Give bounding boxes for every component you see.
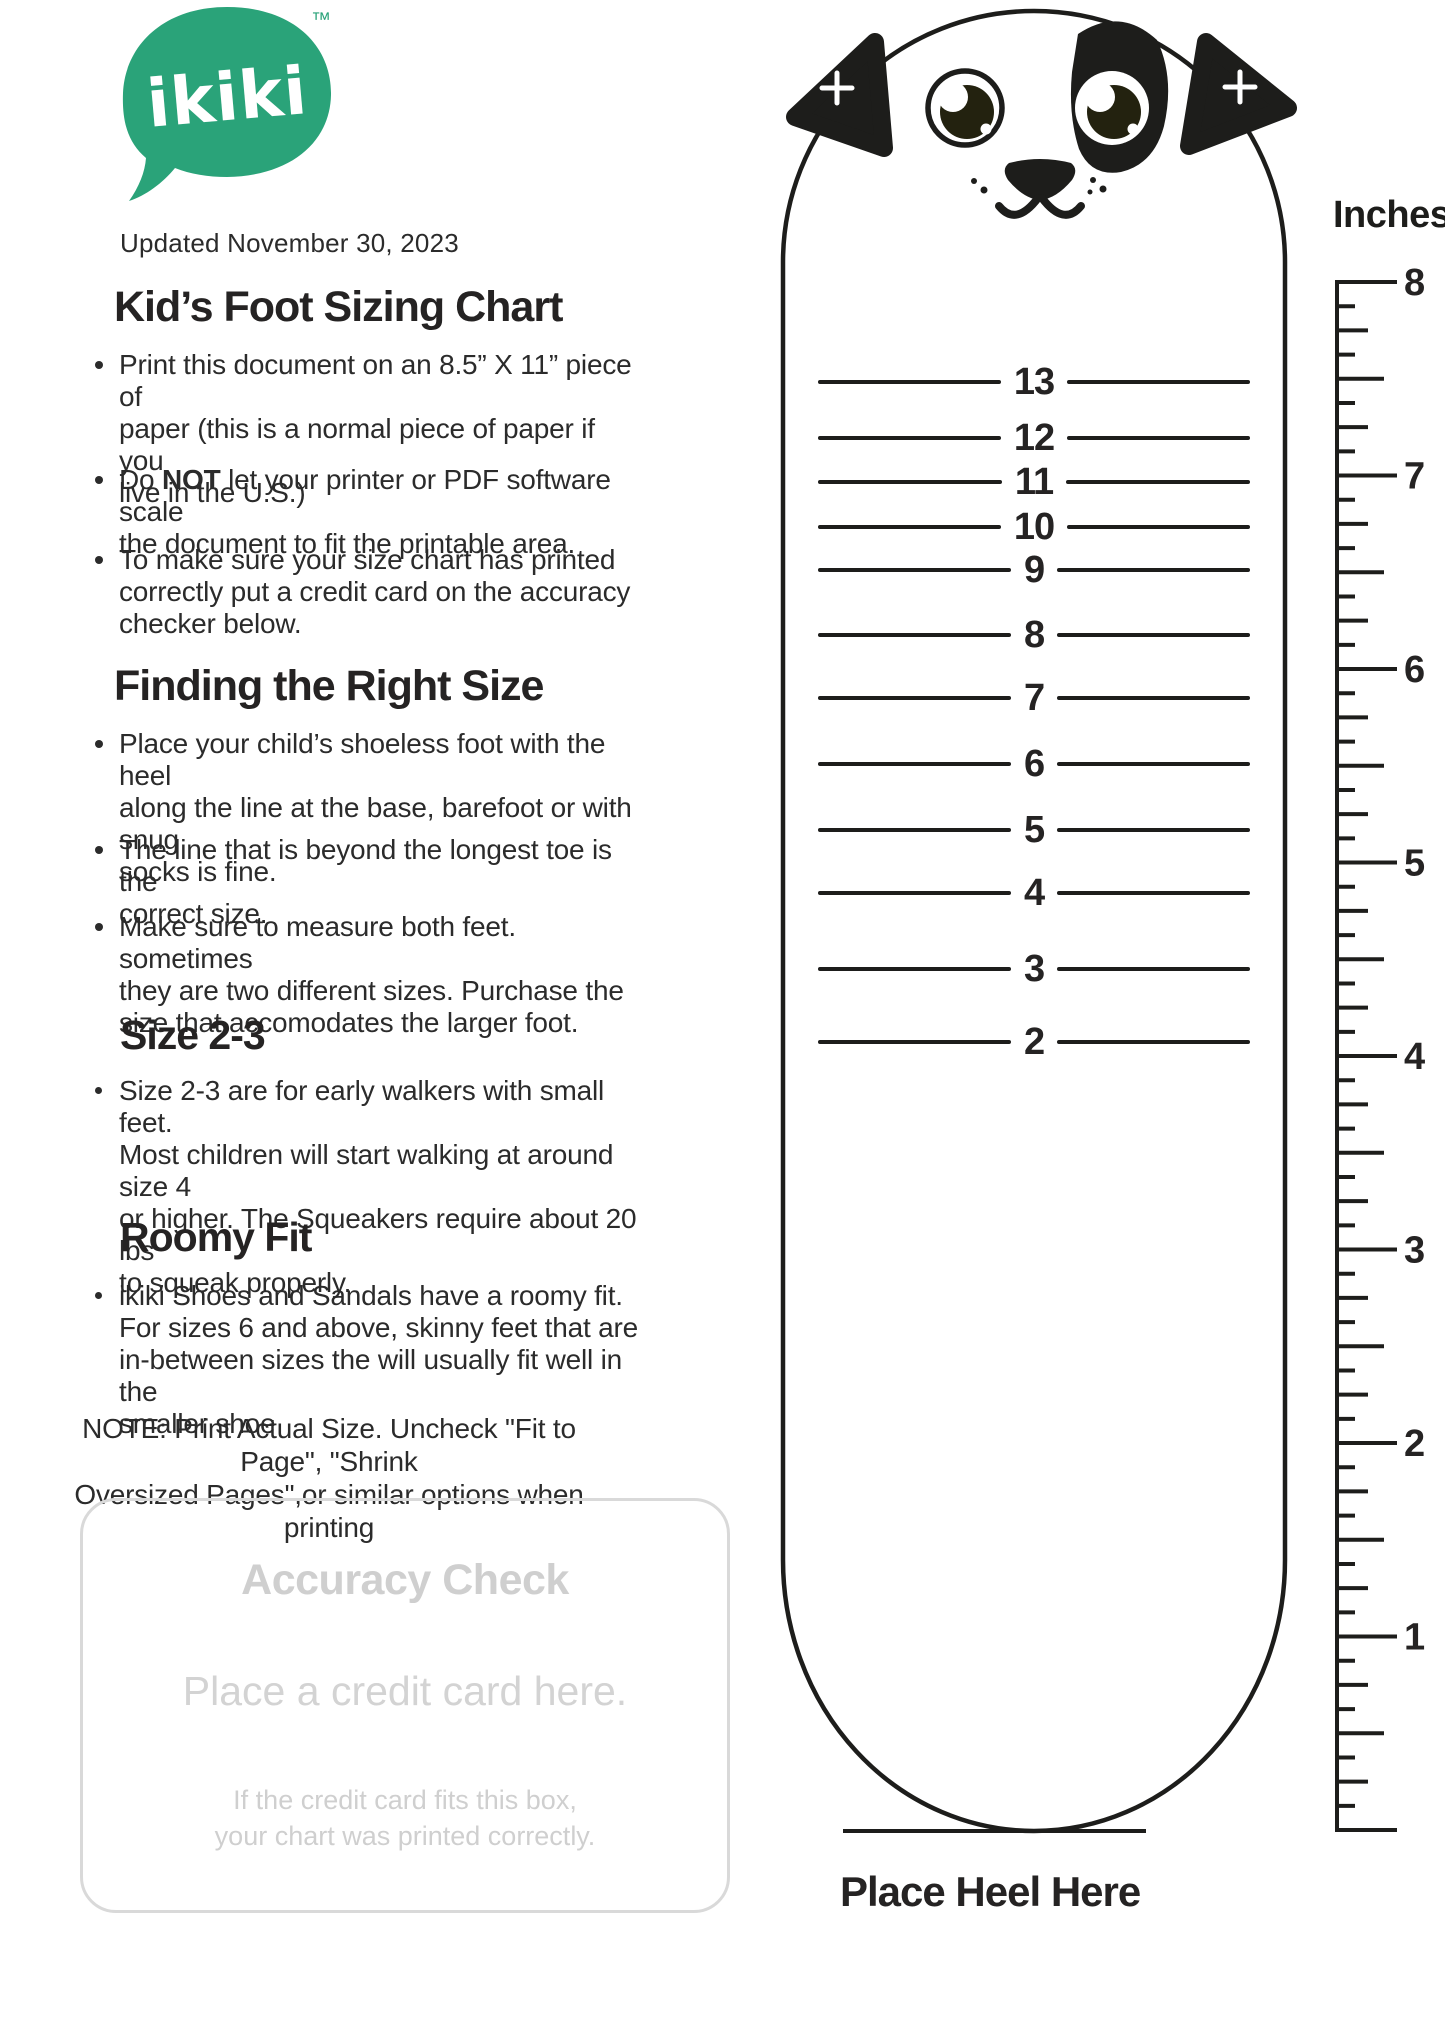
updated-date: Updated November 30, 2023 — [120, 228, 459, 259]
foot-sizing-chart-page: 87654321 ikiki ™ Updated November 30, 20… — [0, 0, 1445, 2043]
inches-ruler: 87654321 — [1337, 262, 1425, 1832]
logo-trademark: ™ — [311, 9, 331, 31]
size-line-left — [818, 633, 1011, 637]
bullet-accuracy-checker: To make sure your size chart has printed… — [119, 544, 639, 640]
size-number: 5 — [1024, 809, 1044, 851]
size-line-left — [818, 525, 1001, 529]
size-line-left — [818, 967, 1011, 971]
size-line-left — [818, 696, 1011, 700]
size-line-right — [1057, 633, 1250, 637]
section-title-roomy-fit: Roomy Fit — [120, 1214, 311, 1261]
size-line-right — [1057, 828, 1250, 832]
bullet-dot — [95, 361, 103, 369]
size-number: 4 — [1024, 872, 1044, 914]
size-line-left — [818, 762, 1011, 766]
size-number: 6 — [1024, 743, 1044, 785]
size-line-left — [818, 380, 1001, 384]
accuracy-check-caption: If the credit card fits this box, your c… — [80, 1782, 730, 1854]
ruler-labels: 87654321 — [1404, 262, 1425, 1659]
ruler-inch-number: 1 — [1404, 1617, 1425, 1659]
size-line-row: 9 — [818, 549, 1250, 591]
page-title: Kid’s Foot Sizing Chart — [114, 283, 562, 332]
section-title-finding-size: Finding the Right Size — [114, 662, 543, 711]
size-line-right — [1057, 891, 1250, 895]
size-number: 13 — [1014, 361, 1054, 403]
size-line-left — [818, 891, 1011, 895]
size-line-right — [1057, 696, 1250, 700]
size-line-right — [1067, 525, 1250, 529]
size-line-left — [818, 828, 1011, 832]
size-line-left — [818, 480, 1002, 484]
ruler-title: Inches — [1333, 194, 1445, 237]
size-line-right — [1066, 480, 1250, 484]
size-line-row: 7 — [818, 677, 1250, 719]
dog-right-eye-icon — [1075, 71, 1149, 145]
bullet-dot — [95, 1087, 102, 1094]
size-number: 3 — [1024, 948, 1044, 990]
size-line-right — [1057, 1040, 1250, 1044]
section-title-size-2-3: Size 2-3 — [120, 1012, 265, 1059]
bullet-dot — [95, 923, 103, 931]
size-line-left — [818, 436, 1001, 440]
bullet-dot — [95, 1292, 102, 1299]
dog-body-capsule — [783, 11, 1285, 1831]
size-number: 8 — [1024, 614, 1044, 656]
size-line-right — [1057, 568, 1250, 572]
size-line-right — [1067, 380, 1250, 384]
ruler-inch-number: 5 — [1404, 843, 1425, 885]
dog-left-eye-icon — [928, 71, 1002, 145]
size-number: 9 — [1024, 549, 1044, 591]
ruler-inch-number: 8 — [1404, 262, 1425, 304]
size-line-row: 8 — [818, 614, 1250, 656]
accuracy-check-instruction: Place a credit card here. — [80, 1668, 730, 1715]
size-number: 7 — [1024, 677, 1044, 719]
ruler-inch-number: 7 — [1404, 456, 1425, 498]
size-line-row: 5 — [818, 809, 1250, 851]
size-line-row: 4 — [818, 872, 1250, 914]
size-line-left — [818, 568, 1011, 572]
size-number: 10 — [1014, 506, 1054, 548]
bullet-dot — [95, 556, 103, 564]
size-line-right — [1057, 967, 1250, 971]
accuracy-check-title: Accuracy Check — [80, 1556, 730, 1605]
size-line-row: 2 — [818, 1021, 1250, 1063]
bullet-early-walkers: Size 2-3 are for early walkers with smal… — [119, 1075, 639, 1299]
ruler-inch-number: 4 — [1404, 1036, 1425, 1078]
size-line-right — [1057, 762, 1250, 766]
ruler-ticks — [1337, 282, 1397, 1830]
size-line-row: 10 — [818, 506, 1250, 548]
size-number: 2 — [1024, 1021, 1044, 1063]
size-number: 11 — [1015, 461, 1053, 503]
logo-brand-text: ikiki — [144, 52, 311, 143]
size-number: 12 — [1014, 417, 1054, 459]
bullet-dot — [95, 740, 103, 748]
bullet-dot — [95, 846, 103, 854]
size-line-row: 3 — [818, 948, 1250, 990]
size-line-row: 13 — [818, 361, 1250, 403]
bullet-dot — [95, 476, 103, 484]
heel-label: Place Heel Here — [840, 1868, 1140, 1916]
size-line-right — [1067, 436, 1250, 440]
ruler-inch-number: 6 — [1404, 649, 1425, 691]
size-line-row: 6 — [818, 743, 1250, 785]
size-line-row: 12 — [818, 417, 1250, 459]
ruler-inch-number: 3 — [1404, 1230, 1425, 1272]
size-line-row: 11 — [818, 461, 1250, 503]
ikiki-logo: ikiki ™ — [105, 0, 345, 220]
ruler-inch-number: 2 — [1404, 1423, 1425, 1465]
size-line-left — [818, 1040, 1011, 1044]
